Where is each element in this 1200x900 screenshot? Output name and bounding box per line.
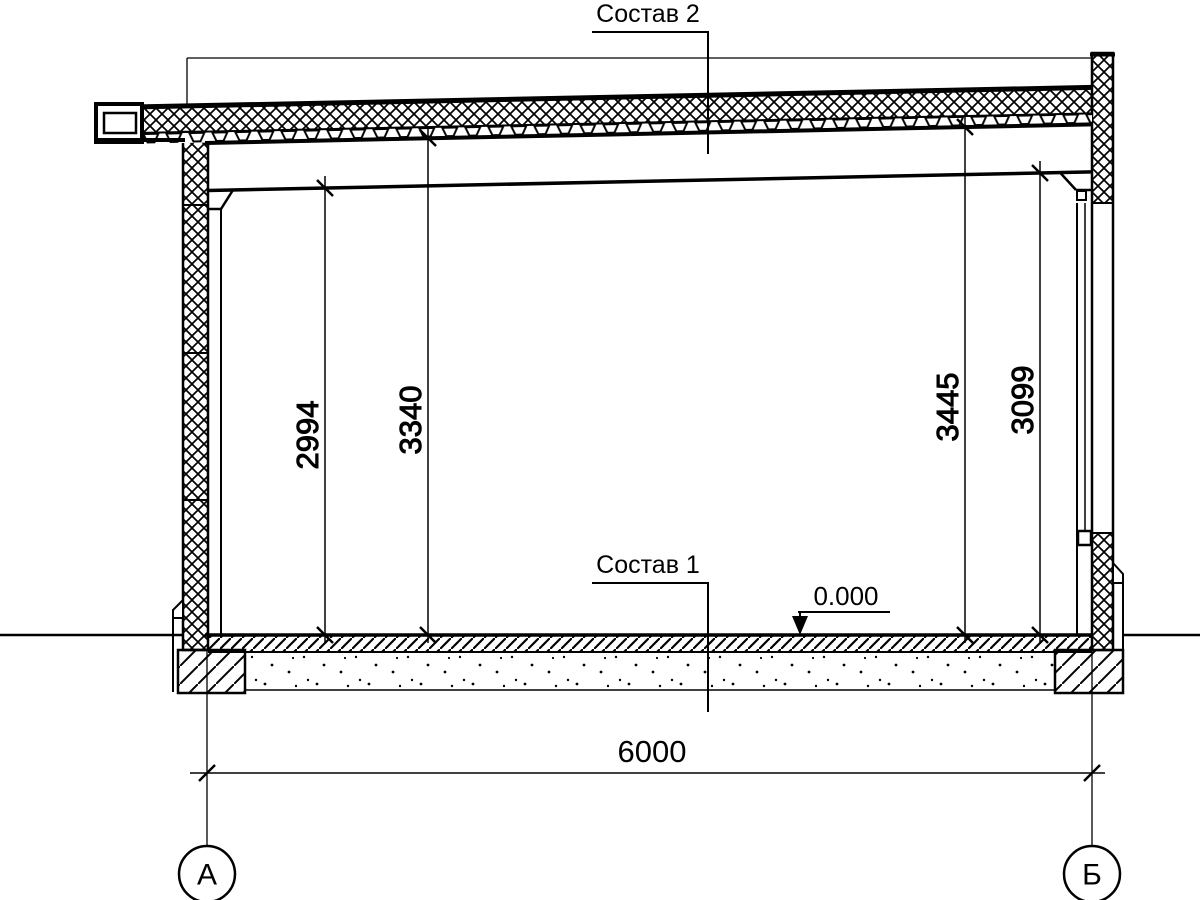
dimension-deck-height-left: 3340: [393, 386, 428, 455]
building-section-drawing: Состав 2 Состав 1 0.000 2994 3340 3445: [0, 0, 1200, 900]
floor-composition-label: Состав 1: [596, 551, 700, 579]
level-value: 0.000: [813, 581, 878, 611]
foundation-right: [1055, 650, 1123, 693]
section-canvas: Состав 2 Состав 1 0.000 2994 3340 3445: [0, 0, 1200, 900]
floor-slab: [205, 635, 1092, 652]
axis-letter-a: А: [197, 859, 217, 892]
underfloor-bedding: [245, 652, 1055, 690]
axis-marker-a: А: [179, 846, 235, 900]
dimension-deck-height-right: 3445: [930, 373, 965, 442]
roof-composition-label: Состав 2: [596, 0, 700, 28]
axis-marker-b: Б: [1064, 846, 1120, 900]
axis-letter-b: Б: [1082, 859, 1102, 892]
dimension-clear-height-left: 2994: [290, 401, 325, 470]
dimension-span: 6000: [618, 734, 687, 769]
window-sill-clip: [1078, 531, 1091, 545]
dimension-clear-height-right: 3099: [1005, 366, 1040, 435]
foundation-left: [178, 650, 245, 693]
